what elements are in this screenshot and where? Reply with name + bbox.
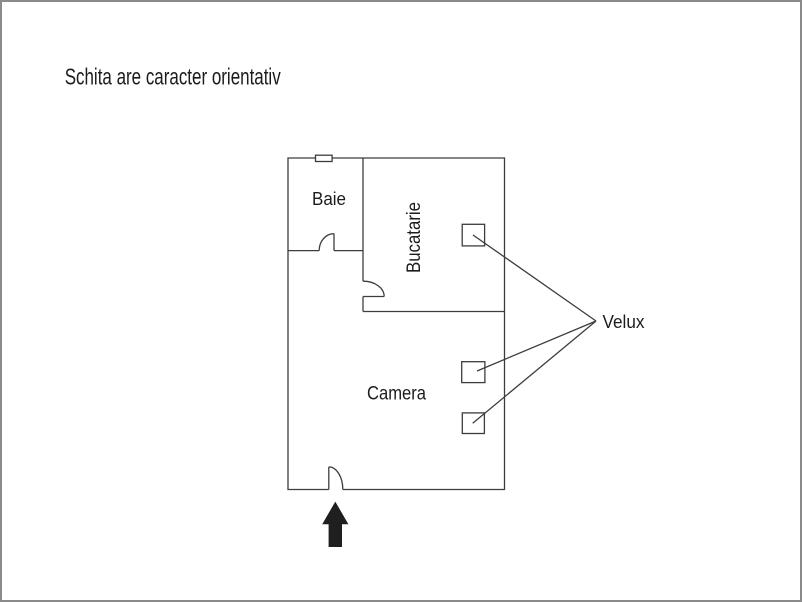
svg-text:Schita are caracter orientativ: Schita are caracter orientativ [65,64,281,90]
svg-text:Velux: Velux [603,311,646,332]
svg-text:Bucatarie: Bucatarie [403,202,425,273]
svg-text:Camera: Camera [367,383,426,404]
svg-text:Baie: Baie [312,189,346,209]
